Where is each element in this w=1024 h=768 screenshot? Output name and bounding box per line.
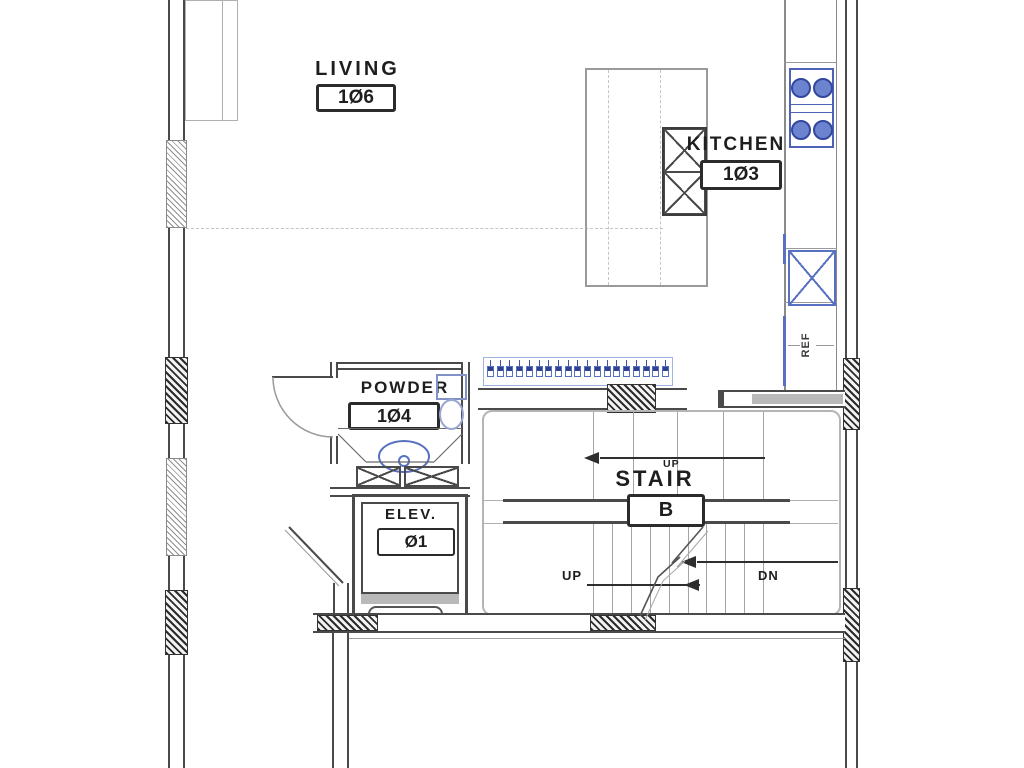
stair-tread-line (631, 524, 632, 614)
coat-hanger-icon (652, 360, 659, 378)
kitchen-label: KITCHEN (680, 134, 792, 156)
base-cabinet-icon (788, 250, 836, 306)
stair-tread-line (744, 524, 745, 614)
counter-divider-2 (784, 248, 837, 249)
toilet-tank (436, 374, 467, 400)
coat-hanger-icon (516, 360, 523, 378)
counter-accent-upper (783, 234, 786, 264)
left-wall-window-lower (166, 458, 187, 556)
entry-closet-divider (222, 0, 223, 121)
coat-hanger-icon (487, 360, 494, 378)
closet-wall-blocking (607, 384, 656, 413)
kitchen-counter-back-edge (836, 0, 837, 396)
coat-hanger-icon (497, 360, 504, 378)
island-dashed-line-1 (608, 70, 609, 285)
powder-room-number: 1Ø4 (348, 402, 440, 430)
powder-door-leaf (272, 376, 333, 378)
coat-hanger-icon (623, 360, 630, 378)
burner-icon (791, 78, 811, 98)
left-wall-window-upper (166, 140, 187, 228)
lobby-door-leaf (289, 527, 343, 583)
powder-top-wall (330, 362, 470, 370)
stair-tread-line (688, 524, 689, 614)
south-wall-blocking-center (590, 615, 656, 631)
coat-hanger-icon (574, 360, 581, 378)
up-label: UP (562, 568, 594, 583)
stair-north-wall-end (718, 390, 724, 408)
stair-tread-line (706, 524, 707, 614)
wall-oven-lower-icon (664, 172, 705, 215)
elevator-sill (361, 594, 459, 604)
coat-closet-hangers (483, 357, 673, 386)
south-wall-blocking-left (317, 615, 378, 631)
elevator-number: Ø1 (377, 528, 455, 556)
powder-door-swing-arc (273, 377, 333, 437)
stair-north-wall-fill (752, 394, 843, 404)
right-wall-blocking-upper (843, 358, 860, 430)
elevator-label: ELEV. (370, 506, 452, 523)
powder-left-wall-lower (330, 436, 338, 464)
stair-tread-line (650, 524, 651, 614)
up-arrow-head-icon (684, 579, 699, 591)
stair-label: STAIR (595, 466, 715, 492)
coat-hanger-icon (506, 360, 513, 378)
toilet-bowl (439, 399, 464, 430)
hall-cabinet-icon-2 (404, 466, 459, 487)
dn-label: DN (758, 568, 790, 583)
coat-hanger-icon (584, 360, 591, 378)
coat-hanger-icon (555, 360, 562, 378)
lobby-door-leaf-inner (285, 530, 339, 586)
counter-divider-1 (784, 62, 837, 63)
left-wall-blocking-upper (165, 357, 188, 424)
living-room-number: 1Ø6 (316, 84, 396, 112)
dn-arrow-head-icon (681, 556, 696, 568)
coat-hanger-icon (643, 360, 650, 378)
stair-tread-line (725, 524, 726, 614)
cooktop-center-band (791, 104, 832, 113)
coat-hanger-icon (613, 360, 620, 378)
burner-icon (813, 120, 833, 140)
living-room-label: LIVING (310, 58, 405, 81)
coat-hanger-icon (545, 360, 552, 378)
island-dashed-line-2 (660, 70, 661, 285)
stair-tread-line (763, 412, 764, 500)
kitchen-number: 1Ø3 (700, 160, 782, 190)
vanity-back-edge (338, 428, 462, 429)
coat-hanger-icon (633, 360, 640, 378)
coat-hanger-icon (662, 360, 669, 378)
burner-icon (791, 120, 811, 140)
stair-tread-line (669, 524, 670, 614)
right-wall-blocking-lower (843, 588, 860, 662)
stair-tread-line (723, 412, 724, 500)
entry-closet-outline (185, 0, 238, 121)
coat-hanger-icon (536, 360, 543, 378)
counter-accent-lower (783, 316, 786, 386)
stair-tread-line (612, 524, 613, 614)
coat-hanger-icon (594, 360, 601, 378)
floor-plan-canvas: REF LIVING 1Ø6 KITCHEN 1Ø3 POWDER 1Ø4 UP… (0, 0, 1024, 768)
stair-number: B (627, 494, 705, 527)
dn-arrow-line (697, 561, 838, 563)
upper-flight-arrow-head-icon (584, 452, 599, 464)
coat-hanger-icon (565, 360, 572, 378)
refrigerator-label: REF (800, 325, 816, 365)
coat-hanger-icon (604, 360, 611, 378)
south-wall-offset-line (349, 638, 845, 639)
lower-left-wall (332, 633, 349, 768)
hall-cabinet-icon-1 (356, 466, 401, 487)
upper-flight-arrow-line (600, 457, 765, 459)
burner-icon (813, 78, 833, 98)
coat-hanger-icon (526, 360, 533, 378)
left-wall-blocking-lower (165, 590, 188, 655)
south-interior-wall (313, 613, 845, 633)
